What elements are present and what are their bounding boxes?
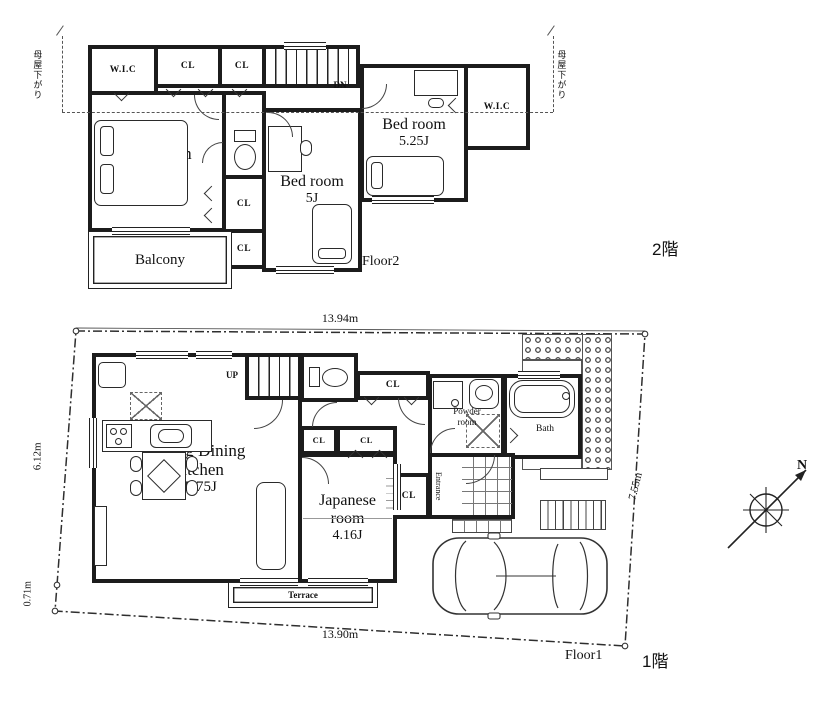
chair: [130, 456, 142, 472]
toilet-tank: [234, 130, 256, 142]
bathtub-inner: [514, 385, 570, 413]
dim-bottom: 13.90m: [300, 628, 380, 642]
pillow: [100, 126, 114, 156]
chair: [130, 480, 142, 496]
bath-faucet: [562, 392, 570, 400]
stove-burner: [120, 428, 127, 435]
chair: [186, 456, 198, 472]
window: [136, 351, 188, 359]
toilet-bowl: [322, 368, 348, 387]
window: [308, 578, 368, 586]
entrance-label: Entrance: [434, 458, 443, 514]
desk-chair: [428, 98, 444, 108]
chair: [186, 480, 198, 496]
floor2-label: Floor2: [362, 254, 432, 270]
powder-room-label: Powder room: [432, 406, 502, 428]
roof-slope-line-right: [553, 36, 554, 112]
floor1-label: Floor1: [565, 648, 629, 664]
pillow: [318, 248, 346, 259]
floor2-tag: 2階: [652, 240, 712, 260]
stairs-dn-label: DN: [322, 80, 358, 90]
cl-label: CL: [237, 199, 251, 210]
balcony-label: Balcony: [135, 252, 185, 269]
japanese-size: 4.16J: [333, 528, 363, 544]
bedroom-525-size: 5.25J: [399, 134, 429, 150]
toilet-tank: [309, 367, 320, 387]
room-cl-2f-a: CL: [154, 45, 222, 88]
cl-label: CL: [386, 380, 400, 391]
japanese-name-line1: Japanese: [319, 492, 376, 510]
bath-label: Bath: [525, 424, 565, 435]
roof-note-left: 母屋下がり: [32, 30, 42, 120]
room-wic-2f-right: W.I.C: [464, 64, 530, 150]
wic-left-label: W.I.C: [110, 65, 136, 76]
cl-label: CL: [235, 61, 249, 72]
window: [89, 418, 97, 468]
window: [276, 266, 334, 274]
bedroom-525-name: Bed room: [382, 116, 446, 134]
floorplan-canvas: 母屋下がり 母屋下がり W.I.C CL CL DN Bed room 6.75…: [0, 0, 831, 728]
staircase-1f: [245, 353, 302, 400]
room-cl-2f-b: CL: [218, 45, 266, 88]
pillow: [100, 164, 114, 194]
washbasin-bowl: [475, 385, 493, 401]
roof-slope-line-left: [62, 36, 63, 112]
sofa: [256, 482, 286, 570]
window: [372, 196, 434, 204]
entrance-canopy: [540, 468, 608, 480]
window: [393, 464, 401, 510]
cl-label: CL: [181, 61, 195, 72]
cl-label: CL: [237, 244, 251, 255]
approach-steps: [540, 500, 606, 530]
entrance-porch: [452, 519, 512, 533]
compass-north-label: N: [794, 458, 810, 474]
pantry-space: [130, 392, 162, 420]
window: [240, 578, 298, 586]
window: [196, 351, 232, 359]
tatami-line: [303, 518, 392, 519]
window: [518, 371, 560, 379]
window: [112, 227, 190, 235]
powder-line1: Powder: [432, 406, 502, 417]
roof-slope-line-horizontal: [62, 112, 553, 113]
sink-basin: [158, 429, 184, 443]
refrigerator: [98, 362, 126, 388]
desk-chair: [300, 140, 312, 156]
room-cl-japanese-a: CL: [300, 426, 338, 455]
stove-burner: [110, 428, 117, 435]
room-cl-2f-mid: CL: [222, 175, 266, 233]
dim-top: 13.94m: [300, 312, 380, 326]
cl-label: CL: [313, 436, 326, 446]
balcony: Balcony: [88, 231, 232, 289]
wic-right-label: W.I.C: [484, 102, 510, 113]
stairs-up-label: UP: [220, 370, 244, 380]
dim-left: 6.12m: [32, 426, 45, 486]
room-cl-japanese-b: CL: [336, 426, 397, 455]
cl-label: CL: [360, 436, 373, 446]
garden-hatch-right: [582, 334, 612, 470]
tv-board: [94, 506, 107, 566]
dim-left-lower: 0.71m: [22, 568, 34, 620]
terrace-label: Terrace: [288, 590, 318, 600]
roof-note-right: 母屋下がり: [556, 30, 566, 120]
desk: [414, 70, 458, 96]
stove-burner: [115, 438, 122, 445]
pillow: [371, 162, 383, 189]
floor1-tag: 1階: [642, 652, 702, 672]
toilet-bowl: [234, 144, 256, 170]
powder-line2: room: [432, 417, 502, 428]
car-top-view: [430, 532, 610, 620]
window: [284, 42, 326, 50]
bedroom-5-name: Bed room: [280, 173, 344, 191]
